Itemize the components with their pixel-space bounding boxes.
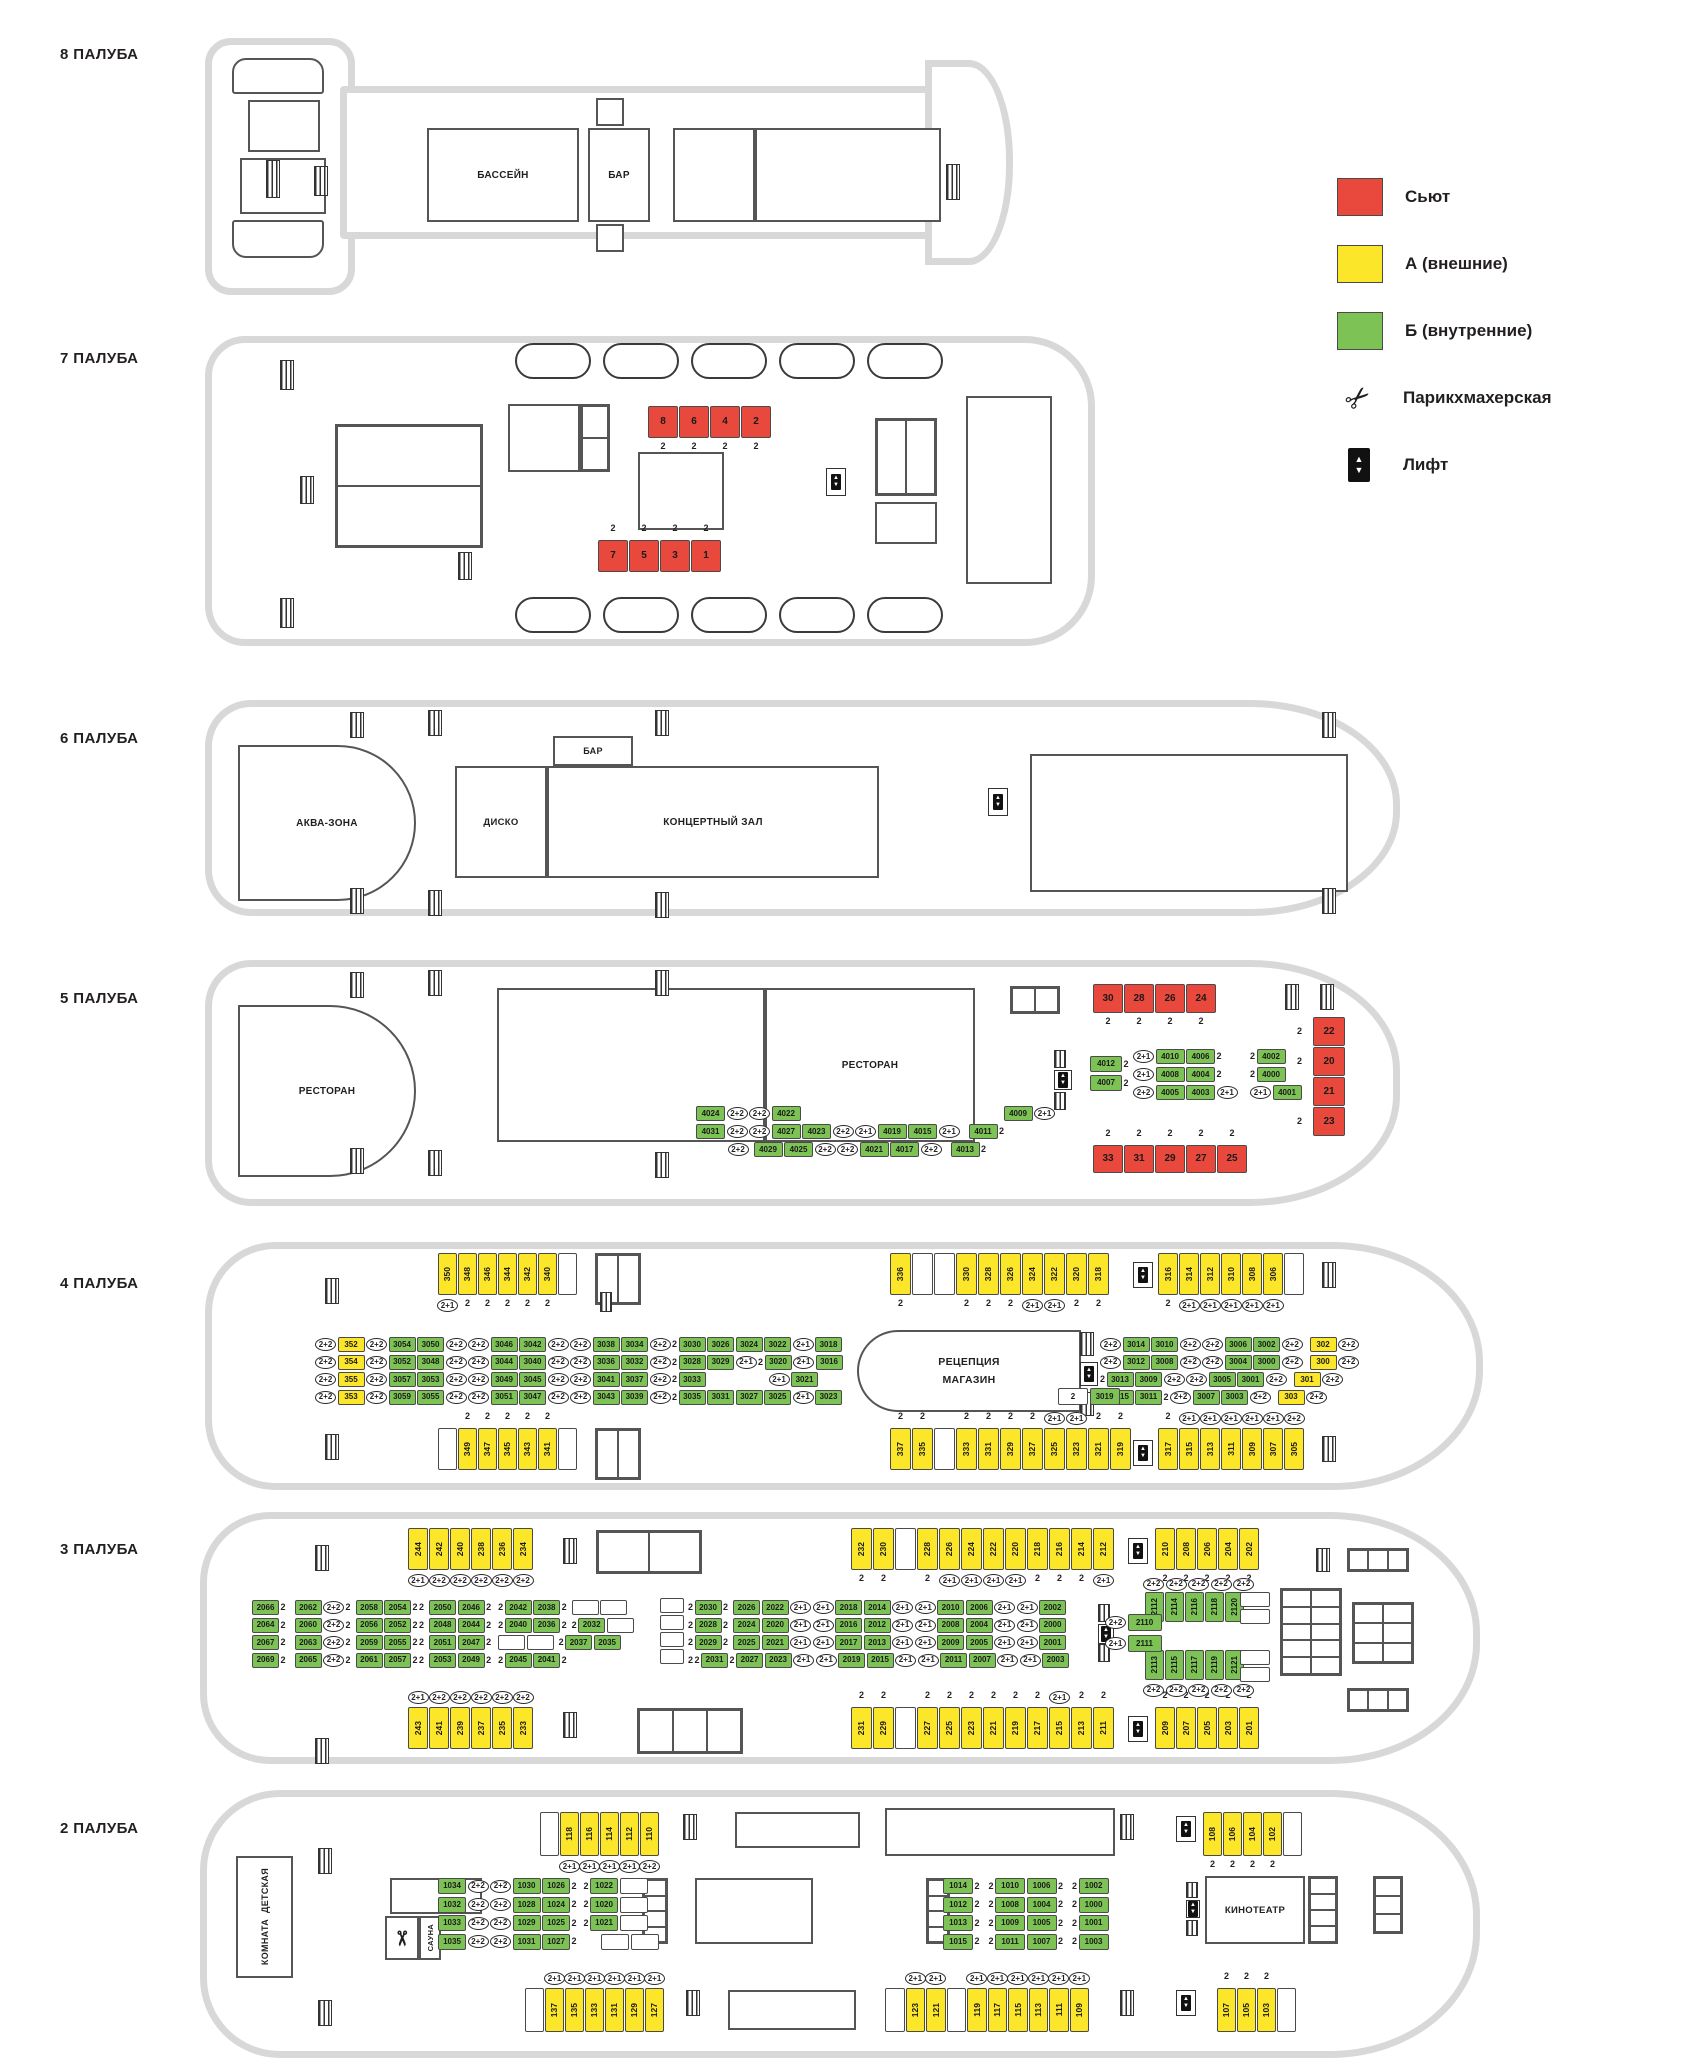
cabin-3016[interactable]: 3016 <box>816 1355 843 1370</box>
cabin-327[interactable]: 327 <box>1022 1428 1043 1470</box>
cabin-24[interactable]: 24 <box>1186 984 1216 1013</box>
cabin-2020[interactable]: 2020 <box>762 1618 789 1633</box>
cabin-2[interactable]: 2 <box>741 406 771 438</box>
cabin-322[interactable]: 322 <box>1044 1253 1065 1295</box>
cabin-115[interactable]: 115 <box>1008 1988 1028 2032</box>
cabin-135[interactable]: 135 <box>565 1988 584 2032</box>
cabin-3018[interactable]: 3018 <box>815 1337 842 1352</box>
cabin-2026[interactable]: 2026 <box>733 1600 760 1615</box>
cabin-211[interactable]: 211 <box>1093 1707 1114 1749</box>
cabin-3033[interactable]: 3033 <box>679 1372 706 1387</box>
cabin-2007[interactable]: 2007 <box>969 1653 996 1668</box>
cabin-329[interactable]: 329 <box>1000 1428 1021 1470</box>
cabin-1028[interactable]: 1028 <box>513 1897 541 1913</box>
cabin-219[interactable]: 219 <box>1005 1707 1026 1749</box>
cabin-2009[interactable]: 2009 <box>937 1635 964 1650</box>
cabin-4010[interactable]: 4010 <box>1156 1049 1185 1064</box>
cabin-2067[interactable]: 2067 <box>252 1635 279 1650</box>
cabin-2065[interactable]: 2065 <box>295 1653 322 1668</box>
cabin-2006[interactable]: 2006 <box>966 1600 993 1615</box>
cabin-3019[interactable]: 3019 <box>1090 1388 1120 1405</box>
cabin-307[interactable]: 307 <box>1263 1428 1283 1470</box>
cabin-131[interactable]: 131 <box>605 1988 624 2032</box>
cabin-3014[interactable]: 3014 <box>1123 1337 1150 1352</box>
cabin-20[interactable]: 20 <box>1313 1047 1345 1076</box>
cabin-2022[interactable]: 2022 <box>762 1600 789 1615</box>
cabin-312[interactable]: 312 <box>1200 1253 1220 1295</box>
cabin-3036[interactable]: 3036 <box>593 1355 620 1370</box>
cabin-2040[interactable]: 2040 <box>505 1618 532 1633</box>
cabin-3046[interactable]: 3046 <box>491 1337 518 1352</box>
cabin-330[interactable]: 330 <box>956 1253 977 1295</box>
cabin-2014[interactable]: 2014 <box>864 1600 891 1615</box>
cabin-333[interactable]: 333 <box>956 1428 977 1470</box>
cabin-3026[interactable]: 3026 <box>707 1337 734 1352</box>
cabin-212[interactable]: 212 <box>1093 1528 1114 1570</box>
cabin-4023[interactable]: 4023 <box>802 1124 831 1139</box>
cabin-117[interactable]: 117 <box>988 1988 1008 2032</box>
cabin-4008[interactable]: 4008 <box>1156 1067 1185 1082</box>
cabin-2053[interactable]: 2053 <box>429 1653 456 1668</box>
cabin-234[interactable]: 234 <box>513 1528 533 1570</box>
cabin-2054[interactable]: 2054 <box>384 1600 411 1615</box>
cabin-2019[interactable]: 2019 <box>838 1653 865 1668</box>
cabin-306[interactable]: 306 <box>1263 1253 1283 1295</box>
cabin-4013[interactable]: 4013 <box>951 1142 980 1157</box>
cabin-239[interactable]: 239 <box>450 1707 470 1749</box>
cabin-337[interactable]: 337 <box>890 1428 911 1470</box>
cabin-236[interactable]: 236 <box>492 1528 512 1570</box>
cabin-2010[interactable]: 2010 <box>937 1600 964 1615</box>
cabin-2064[interactable]: 2064 <box>252 1618 279 1633</box>
cabin-3038[interactable]: 3038 <box>593 1337 620 1352</box>
cabin-21[interactable]: 21 <box>1313 1077 1345 1106</box>
cabin-109[interactable]: 109 <box>1070 1988 1090 2032</box>
cabin-202[interactable]: 202 <box>1239 1528 1259 1570</box>
cabin-31[interactable]: 31 <box>1124 1145 1154 1173</box>
cabin-110[interactable]: 110 <box>640 1812 659 1856</box>
cabin-3013[interactable]: 3013 <box>1107 1372 1134 1387</box>
cabin-3050[interactable]: 3050 <box>417 1337 444 1352</box>
cabin-2119[interactable]: 2119 <box>1205 1650 1224 1680</box>
cabin-4019[interactable]: 4019 <box>878 1124 907 1139</box>
cabin-3032[interactable]: 3032 <box>621 1355 648 1370</box>
cabin-353[interactable]: 353 <box>338 1390 365 1405</box>
cabin-2048[interactable]: 2048 <box>429 1618 456 1633</box>
cabin-3059[interactable]: 3059 <box>389 1390 416 1405</box>
cabin-4015[interactable]: 4015 <box>908 1124 937 1139</box>
cabin-26[interactable]: 26 <box>1155 984 1185 1013</box>
cabin-2051[interactable]: 2051 <box>429 1635 456 1650</box>
cabin-114[interactable]: 114 <box>600 1812 619 1856</box>
cabin-2015[interactable]: 2015 <box>867 1653 894 1668</box>
cabin-328[interactable]: 328 <box>978 1253 999 1295</box>
cabin-2000[interactable]: 2000 <box>1039 1618 1066 1633</box>
cabin-205[interactable]: 205 <box>1197 1707 1217 1749</box>
cabin-4005[interactable]: 4005 <box>1156 1085 1185 1100</box>
cabin-1011[interactable]: 1011 <box>995 1934 1025 1950</box>
cabin-1008[interactable]: 1008 <box>995 1897 1025 1913</box>
cabin-354[interactable]: 354 <box>338 1355 365 1370</box>
cabin-116[interactable]: 116 <box>580 1812 599 1856</box>
cabin-4021[interactable]: 4021 <box>860 1142 889 1157</box>
cabin-336[interactable]: 336 <box>890 1253 911 1295</box>
cabin-5[interactable]: 5 <box>629 540 659 572</box>
cabin-228[interactable]: 228 <box>917 1528 938 1570</box>
cabin-226[interactable]: 226 <box>939 1528 960 1570</box>
cabin-1002[interactable]: 1002 <box>1079 1878 1109 1894</box>
cabin-2111[interactable]: 2111 <box>1128 1635 1162 1652</box>
cabin-4011[interactable]: 4011 <box>969 1124 998 1139</box>
cabin-345[interactable]: 345 <box>498 1428 517 1470</box>
cabin-3045[interactable]: 3045 <box>519 1372 546 1387</box>
cabin-227[interactable]: 227 <box>917 1707 938 1749</box>
cabin-325[interactable]: 325 <box>1044 1428 1065 1470</box>
cabin-121[interactable]: 121 <box>926 1988 946 2032</box>
cabin-326[interactable]: 326 <box>1000 1253 1021 1295</box>
cabin-3055[interactable]: 3055 <box>417 1390 444 1405</box>
cabin-346[interactable]: 346 <box>478 1253 497 1295</box>
cabin-2018[interactable]: 2018 <box>835 1600 862 1615</box>
cabin-348[interactable]: 348 <box>458 1253 477 1295</box>
cabin-225[interactable]: 225 <box>939 1707 960 1749</box>
cabin-2058[interactable]: 2058 <box>356 1600 383 1615</box>
cabin-341[interactable]: 341 <box>538 1428 557 1470</box>
cabin-118[interactable]: 118 <box>560 1812 579 1856</box>
cabin-208[interactable]: 208 <box>1176 1528 1196 1570</box>
cabin-350[interactable]: 350 <box>438 1253 457 1295</box>
cabin-2115[interactable]: 2115 <box>1165 1650 1184 1680</box>
cabin-233[interactable]: 233 <box>513 1707 533 1749</box>
cabin-2036[interactable]: 2036 <box>533 1618 560 1633</box>
cabin-224[interactable]: 224 <box>961 1528 982 1570</box>
cabin-2041[interactable]: 2041 <box>533 1653 560 1668</box>
cabin-3044[interactable]: 3044 <box>491 1355 518 1370</box>
cabin-2047[interactable]: 2047 <box>458 1635 485 1650</box>
cabin-2116[interactable]: 2116 <box>1185 1592 1204 1622</box>
cabin-2037[interactable]: 2037 <box>565 1635 592 1650</box>
cabin-1034[interactable]: 1034 <box>438 1878 466 1894</box>
cabin-2017[interactable]: 2017 <box>835 1635 862 1650</box>
cabin-2110[interactable]: 2110 <box>1128 1614 1162 1631</box>
cabin-3010[interactable]: 3010 <box>1151 1337 1178 1352</box>
cabin-3004[interactable]: 3004 <box>1225 1355 1252 1370</box>
cabin-6[interactable]: 6 <box>679 406 709 438</box>
cabin-3041[interactable]: 3041 <box>593 1372 620 1387</box>
cabin-2062[interactable]: 2062 <box>295 1600 322 1615</box>
cabin-218[interactable]: 218 <box>1027 1528 1048 1570</box>
cabin-2035[interactable]: 2035 <box>594 1635 621 1650</box>
cabin-3027[interactable]: 3027 <box>736 1390 763 1405</box>
cabin-106[interactable]: 106 <box>1223 1812 1242 1856</box>
cabin-2046[interactable]: 2046 <box>458 1600 485 1615</box>
cabin-4029[interactable]: 4029 <box>754 1142 783 1157</box>
cabin-2002[interactable]: 2002 <box>1039 1600 1066 1615</box>
cabin-113[interactable]: 113 <box>1029 1988 1049 2032</box>
cabin-1013[interactable]: 1013 <box>943 1915 973 1931</box>
cabin-342[interactable]: 342 <box>518 1253 537 1295</box>
cabin-315[interactable]: 315 <box>1179 1428 1199 1470</box>
cabin-220[interactable]: 220 <box>1005 1528 1026 1570</box>
cabin-316[interactable]: 316 <box>1158 1253 1178 1295</box>
cabin-4003[interactable]: 4003 <box>1186 1085 1215 1100</box>
cabin-335[interactable]: 335 <box>912 1428 933 1470</box>
cabin-3054[interactable]: 3054 <box>389 1337 416 1352</box>
cabin-2025[interactable]: 2025 <box>733 1635 760 1650</box>
cabin-241[interactable]: 241 <box>429 1707 449 1749</box>
cabin-22[interactable]: 22 <box>1313 1017 1345 1046</box>
cabin-3008[interactable]: 3008 <box>1151 1355 1178 1370</box>
cabin-4007[interactable]: 4007 <box>1090 1075 1122 1091</box>
cabin-3048[interactable]: 3048 <box>417 1355 444 1370</box>
cabin-112[interactable]: 112 <box>620 1812 639 1856</box>
cabin-25[interactable]: 25 <box>1217 1145 1247 1173</box>
cabin-4027[interactable]: 4027 <box>772 1124 801 1139</box>
cabin-3024[interactable]: 3024 <box>736 1337 763 1352</box>
cabin-2016[interactable]: 2016 <box>835 1618 862 1633</box>
cabin-309[interactable]: 309 <box>1242 1428 1262 1470</box>
cabin-2069[interactable]: 2069 <box>252 1653 279 1668</box>
cabin-3006[interactable]: 3006 <box>1225 1337 1252 1352</box>
cabin-2013[interactable]: 2013 <box>864 1635 891 1650</box>
cabin-2063[interactable]: 2063 <box>295 1635 322 1650</box>
cabin-3000[interactable]: 3000 <box>1253 1355 1280 1370</box>
cabin-1012[interactable]: 1012 <box>943 1897 973 1913</box>
cabin-3039[interactable]: 3039 <box>621 1390 648 1405</box>
cabin-235[interactable]: 235 <box>492 1707 512 1749</box>
cabin-2044[interactable]: 2044 <box>458 1618 485 1633</box>
cabin-319[interactable]: 319 <box>1110 1428 1131 1470</box>
cabin-1010[interactable]: 1010 <box>995 1878 1025 1894</box>
cabin-323[interactable]: 323 <box>1066 1428 1087 1470</box>
cabin-4001[interactable]: 4001 <box>1273 1085 1302 1100</box>
cabin-4017[interactable]: 4017 <box>890 1142 919 1157</box>
cabin-331[interactable]: 331 <box>978 1428 999 1470</box>
cabin-3034[interactable]: 3034 <box>621 1337 648 1352</box>
cabin-2061[interactable]: 2061 <box>356 1653 383 1668</box>
cabin-2059[interactable]: 2059 <box>356 1635 383 1650</box>
cabin-3042[interactable]: 3042 <box>519 1337 546 1352</box>
cabin-3023[interactable]: 3023 <box>815 1390 842 1405</box>
cabin-302[interactable]: 302 <box>1310 1337 1337 1352</box>
cabin-229[interactable]: 229 <box>873 1707 894 1749</box>
cabin-23[interactable]: 23 <box>1313 1107 1345 1136</box>
cabin-1030[interactable]: 1030 <box>513 1878 541 1894</box>
cabin-7[interactable]: 7 <box>598 540 628 572</box>
cabin-1015[interactable]: 1015 <box>943 1934 973 1950</box>
cabin-3037[interactable]: 3037 <box>621 1372 648 1387</box>
cabin-1024[interactable]: 1024 <box>542 1897 570 1913</box>
cabin-2117[interactable]: 2117 <box>1185 1650 1204 1680</box>
cabin-1000[interactable]: 1000 <box>1079 1897 1109 1913</box>
cabin-1026[interactable]: 1026 <box>542 1878 570 1894</box>
cabin-3029[interactable]: 3029 <box>707 1355 734 1370</box>
cabin-203[interactable]: 203 <box>1218 1707 1238 1749</box>
cabin-3031[interactable]: 3031 <box>707 1390 734 1405</box>
cabin-1014[interactable]: 1014 <box>943 1878 973 1894</box>
cabin-3030[interactable]: 3030 <box>679 1337 706 1352</box>
cabin-4012[interactable]: 4012 <box>1090 1056 1122 1072</box>
cabin-2049[interactable]: 2049 <box>458 1653 485 1668</box>
cabin-1021[interactable]: 1021 <box>590 1915 618 1931</box>
cabin-129[interactable]: 129 <box>625 1988 644 2032</box>
cabin-2004[interactable]: 2004 <box>966 1618 993 1633</box>
cabin-137[interactable]: 137 <box>545 1988 564 2032</box>
cabin-243[interactable]: 243 <box>408 1707 428 1749</box>
cabin-2030[interactable]: 2030 <box>695 1600 722 1615</box>
cabin-3035[interactable]: 3035 <box>679 1390 706 1405</box>
cabin-301[interactable]: 301 <box>1294 1372 1321 1387</box>
cabin-3028[interactable]: 3028 <box>679 1355 706 1370</box>
cabin-355[interactable]: 355 <box>338 1372 365 1387</box>
cabin-3020[interactable]: 3020 <box>765 1355 792 1370</box>
cabin-103[interactable]: 103 <box>1257 1988 1276 2032</box>
cabin-4031[interactable]: 4031 <box>696 1124 725 1139</box>
cabin-352[interactable]: 352 <box>338 1337 365 1352</box>
cabin-133[interactable]: 133 <box>585 1988 604 2032</box>
cabin-111[interactable]: 111 <box>1049 1988 1069 2032</box>
cabin-3002[interactable]: 3002 <box>1253 1337 1280 1352</box>
cabin-30[interactable]: 30 <box>1093 984 1123 1013</box>
cabin-311[interactable]: 311 <box>1221 1428 1241 1470</box>
cabin-349[interactable]: 349 <box>458 1428 477 1470</box>
cabin-119[interactable]: 119 <box>967 1988 987 2032</box>
cabin-207[interactable]: 207 <box>1176 1707 1196 1749</box>
cabin-1[interactable]: 1 <box>691 540 721 572</box>
cabin-2032[interactable]: 2032 <box>578 1618 605 1633</box>
cabin-2118[interactable]: 2118 <box>1205 1592 1224 1622</box>
cabin-217[interactable]: 217 <box>1027 1707 1048 1749</box>
cabin-105[interactable]: 105 <box>1237 1988 1256 2032</box>
cabin-2055[interactable]: 2055 <box>384 1635 411 1650</box>
cabin-4000[interactable]: 4000 <box>1257 1067 1286 1082</box>
cabin-3053[interactable]: 3053 <box>417 1372 444 1387</box>
cabin-2050[interactable]: 2050 <box>429 1600 456 1615</box>
cabin-2056[interactable]: 2056 <box>356 1618 383 1633</box>
cabin-2024[interactable]: 2024 <box>733 1618 760 1633</box>
cabin-102[interactable]: 102 <box>1263 1812 1282 1856</box>
cabin-3043[interactable]: 3043 <box>593 1390 620 1405</box>
cabin-2042[interactable]: 2042 <box>505 1600 532 1615</box>
cabin-1029[interactable]: 1029 <box>513 1915 541 1931</box>
cabin-340[interactable]: 340 <box>538 1253 557 1295</box>
cabin-4025[interactable]: 4025 <box>784 1142 813 1157</box>
cabin-27[interactable]: 27 <box>1186 1145 1216 1173</box>
cabin-221[interactable]: 221 <box>983 1707 1004 1749</box>
cabin-206[interactable]: 206 <box>1197 1528 1217 1570</box>
cabin-2045[interactable]: 2045 <box>505 1653 532 1668</box>
cabin-210[interactable]: 210 <box>1155 1528 1175 1570</box>
cabin-2023[interactable]: 2023 <box>765 1653 792 1668</box>
cabin-2114[interactable]: 2114 <box>1165 1592 1184 1622</box>
cabin-2060[interactable]: 2060 <box>295 1618 322 1633</box>
cabin-1025[interactable]: 1025 <box>542 1915 570 1931</box>
cabin-1032[interactable]: 1032 <box>438 1897 466 1913</box>
cabin-2031[interactable]: 2031 <box>701 1653 728 1668</box>
cabin-8[interactable]: 8 <box>648 406 678 438</box>
cabin-320[interactable]: 320 <box>1066 1253 1087 1295</box>
cabin-107[interactable]: 107 <box>1217 1988 1236 2032</box>
cabin-344[interactable]: 344 <box>498 1253 517 1295</box>
cabin-3007[interactable]: 3007 <box>1193 1390 1220 1405</box>
cabin-343[interactable]: 343 <box>518 1428 537 1470</box>
cabin-127[interactable]: 127 <box>645 1988 664 2032</box>
cabin-1035[interactable]: 1035 <box>438 1934 466 1950</box>
cabin-2052[interactable]: 2052 <box>384 1618 411 1633</box>
cabin-2011[interactable]: 2011 <box>940 1653 967 1668</box>
cabin-244[interactable]: 244 <box>408 1528 428 1570</box>
cabin-1031[interactable]: 1031 <box>513 1934 541 1950</box>
cabin-3005[interactable]: 3005 <box>1209 1372 1236 1387</box>
cabin-317[interactable]: 317 <box>1158 1428 1178 1470</box>
cabin-3047[interactable]: 3047 <box>519 1390 546 1405</box>
cabin-3051[interactable]: 3051 <box>491 1390 518 1405</box>
cabin-310[interactable]: 310 <box>1221 1253 1241 1295</box>
cabin-2021[interactable]: 2021 <box>762 1635 789 1650</box>
cabin-29[interactable]: 29 <box>1155 1145 1185 1173</box>
cabin-1027[interactable]: 1027 <box>542 1934 570 1950</box>
cabin-2038[interactable]: 2038 <box>533 1600 560 1615</box>
cabin-314[interactable]: 314 <box>1179 1253 1199 1295</box>
cabin-222[interactable]: 222 <box>983 1528 1004 1570</box>
cabin-4022[interactable]: 4022 <box>772 1106 801 1121</box>
cabin-104[interactable]: 104 <box>1243 1812 1262 1856</box>
cabin-1001[interactable]: 1001 <box>1079 1915 1109 1931</box>
cabin-300[interactable]: 300 <box>1310 1355 1337 1370</box>
cabin-2027[interactable]: 2027 <box>736 1653 763 1668</box>
cabin-4024[interactable]: 4024 <box>696 1106 725 1121</box>
cabin-3001[interactable]: 3001 <box>1237 1372 1264 1387</box>
cabin-28[interactable]: 28 <box>1124 984 1154 1013</box>
cabin-1009[interactable]: 1009 <box>995 1915 1025 1931</box>
cabin-230[interactable]: 230 <box>873 1528 894 1570</box>
cabin-4006[interactable]: 4006 <box>1186 1049 1215 1064</box>
cabin-204[interactable]: 204 <box>1218 1528 1238 1570</box>
cabin-3[interactable]: 3 <box>660 540 690 572</box>
cabin-2066[interactable]: 2066 <box>252 1600 279 1615</box>
cabin-215[interactable]: 215 <box>1049 1707 1070 1749</box>
cabin-242[interactable]: 242 <box>429 1528 449 1570</box>
cabin-1003[interactable]: 1003 <box>1079 1934 1109 1950</box>
cabin-1033[interactable]: 1033 <box>438 1915 466 1931</box>
cabin-201[interactable]: 201 <box>1239 1707 1259 1749</box>
cabin-216[interactable]: 216 <box>1049 1528 1070 1570</box>
cabin-3009[interactable]: 3009 <box>1135 1372 1162 1387</box>
cabin-123[interactable]: 123 <box>906 1988 926 2032</box>
cabin-4009[interactable]: 4009 <box>1004 1106 1033 1121</box>
cabin-3052[interactable]: 3052 <box>389 1355 416 1370</box>
cabin-308[interactable]: 308 <box>1242 1253 1262 1295</box>
cabin-321[interactable]: 321 <box>1088 1428 1109 1470</box>
cabin-2[interactable]: 2 <box>1058 1388 1088 1405</box>
cabin-1006[interactable]: 1006 <box>1027 1878 1057 1894</box>
cabin-3057[interactable]: 3057 <box>389 1372 416 1387</box>
cabin-3025[interactable]: 3025 <box>764 1390 791 1405</box>
cabin-324[interactable]: 324 <box>1022 1253 1043 1295</box>
cabin-3040[interactable]: 3040 <box>519 1355 546 1370</box>
cabin-1020[interactable]: 1020 <box>590 1897 618 1913</box>
cabin-2029[interactable]: 2029 <box>695 1635 722 1650</box>
cabin-1007[interactable]: 1007 <box>1027 1934 1057 1950</box>
cabin-3003[interactable]: 3003 <box>1221 1390 1248 1405</box>
cabin-214[interactable]: 214 <box>1071 1528 1092 1570</box>
cabin-213[interactable]: 213 <box>1071 1707 1092 1749</box>
cabin-4004[interactable]: 4004 <box>1186 1067 1215 1082</box>
cabin-4[interactable]: 4 <box>710 406 740 438</box>
cabin-347[interactable]: 347 <box>478 1428 497 1470</box>
cabin-2001[interactable]: 2001 <box>1039 1635 1066 1650</box>
cabin-1004[interactable]: 1004 <box>1027 1897 1057 1913</box>
